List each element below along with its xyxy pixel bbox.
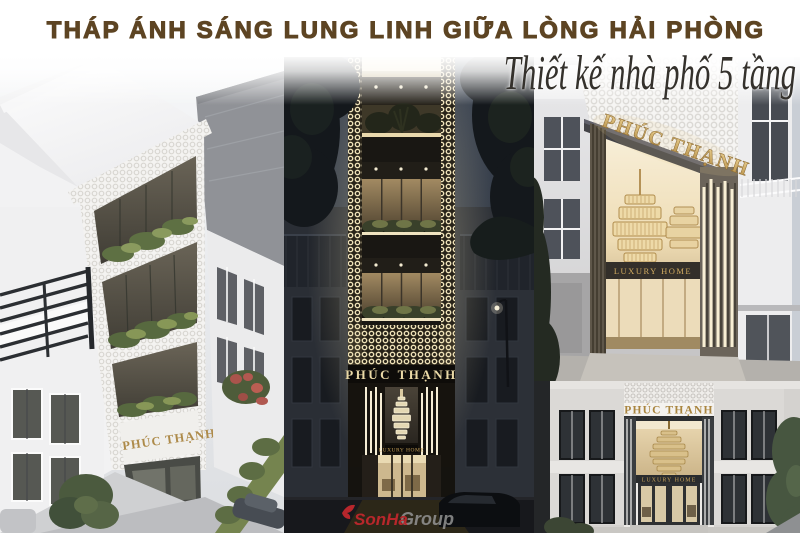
svg-text:LUXURY HOME: LUXURY HOME: [614, 266, 692, 276]
svg-text:LUXURY HOME: LUXURY HOME: [642, 478, 697, 484]
svg-text:SonHa: SonHa: [354, 510, 408, 529]
svg-text:PHÚC THẠNH: PHÚC THẠNH: [624, 403, 713, 417]
svg-text:PHÚC THẠNH: PHÚC THẠNH: [345, 367, 458, 382]
svg-text:Group: Group: [400, 509, 454, 529]
svg-text:LUXURY HOME: LUXURY HOME: [379, 448, 425, 454]
